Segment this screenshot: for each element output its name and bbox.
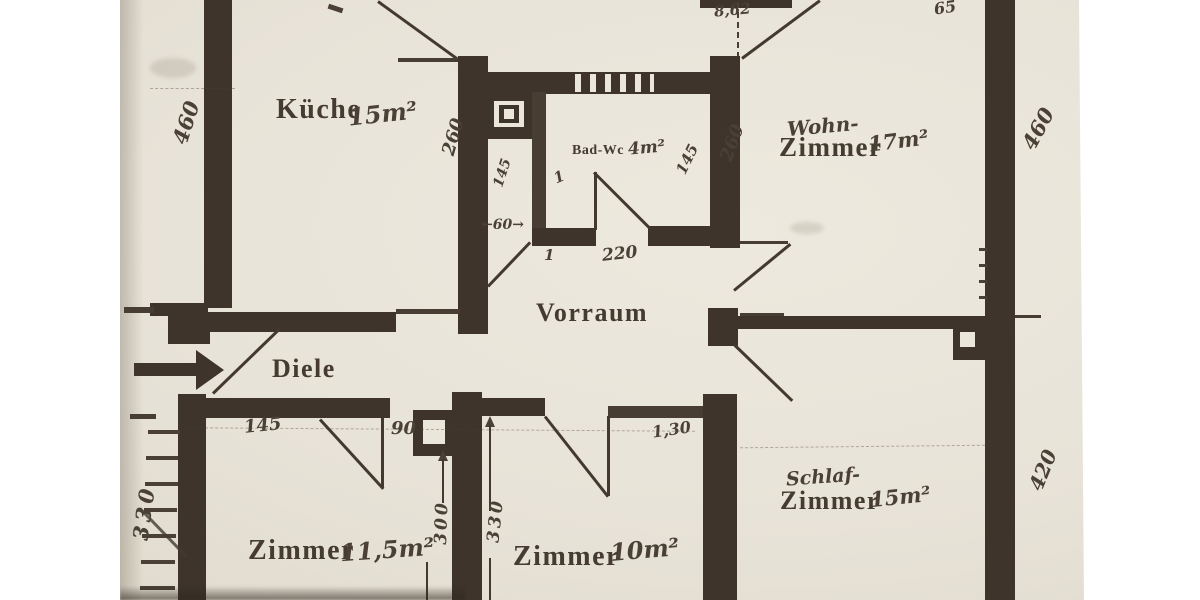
photo-edge-shadow: [120, 586, 465, 600]
wall-zimmer1-zimmer2: [452, 392, 482, 600]
wall-vorraum-bottom-right: [608, 406, 705, 418]
dim-left-height: 460: [169, 98, 203, 146]
wall-tick-outside: [1015, 315, 1041, 318]
dim-shaft-width: 145: [491, 157, 513, 189]
porch-step-line: [124, 307, 154, 313]
wall-zimmer2-schlafzimmer: [703, 394, 737, 600]
radiator-tick: [979, 296, 987, 299]
wall-kueche-right: [458, 56, 488, 334]
dim-badwc-depth: 145: [674, 142, 701, 177]
floorplan-photo: Küche 15m² Bad-Wc 4m² Wohn- Zimmer 17m² …: [0, 0, 1200, 600]
room-area-kueche: 15m²: [347, 98, 418, 129]
room-area-badwc: 4m²: [627, 138, 666, 158]
chimney-box-inner: [960, 332, 975, 347]
wall-diele-zimmer1: [178, 398, 390, 418]
room-label-vorraum: Vorraum: [536, 300, 648, 326]
dim-zimmer1-depth: 300: [433, 500, 452, 545]
wall-hatch-tick: [148, 430, 180, 434]
door-swing-wohnzimmer: [733, 243, 791, 292]
room-label-zimmer2: Zimmer: [513, 543, 620, 571]
dim-diele-door: 90: [391, 420, 416, 438]
dim-badwc-width: 220: [601, 244, 638, 265]
room-label-schlafzimmer: Zimmer: [780, 488, 880, 514]
dim-top-right-note: 65: [933, 0, 957, 18]
room-area-wohnzimmer: 17m²: [867, 126, 930, 154]
room-area-zimmer1: 11,5m²: [339, 535, 435, 566]
porch-step-line: [130, 414, 156, 419]
dim-line-300: [442, 459, 444, 503]
door-leaf-zimmer2: [607, 416, 610, 496]
dim-diele-wall: 145: [243, 415, 282, 437]
wall-shaft-right: [532, 92, 546, 234]
dim-mark-one-a: 1: [544, 248, 554, 263]
wall-vorraum-bottom-left: [482, 398, 545, 416]
dim-right-height-bottom: 420: [1026, 447, 1060, 493]
wall-hatch-tick: [141, 560, 175, 564]
dim-mark-one-b: 1: [552, 169, 567, 187]
door-threshold-kueche: [396, 309, 460, 314]
entrance-arrow-head: [196, 350, 224, 390]
wall-hatch-tick: [146, 456, 178, 460]
photo-crease: [740, 445, 990, 449]
door-threshold: [740, 313, 784, 316]
dim-zimmer2-wall-note: 1,30: [651, 419, 692, 440]
door-swing-schlafzimmer: [733, 343, 793, 401]
dim-line-330-cont: [489, 558, 491, 600]
door-swing-zimmer2: [544, 416, 609, 498]
wall-left-lower: [178, 394, 206, 600]
dim-zimmer2-depth: 330: [485, 497, 507, 543]
wall-wohn-schlaf-divider: [738, 316, 988, 329]
porch-block: [150, 303, 208, 316]
room-area-schlafzimmer: 15m²: [869, 483, 932, 510]
radiator-tick: [979, 248, 987, 251]
door-leaf-badwc: [594, 172, 597, 230]
door-threshold: [740, 241, 788, 244]
boiler-box-core: [504, 109, 514, 119]
room-label-badwc: Bad-Wc: [572, 144, 624, 158]
door-swing-kueche-top: [377, 0, 459, 60]
entrance-arrow-icon: [134, 363, 198, 376]
door-swing-badwc: [593, 171, 651, 229]
pen-mark: [328, 4, 344, 13]
dim-shaft-door: ←60→: [481, 218, 524, 232]
room-label-diele: Diele: [272, 356, 336, 382]
room-area-zimmer2: 10m²: [609, 535, 680, 565]
door-swing-closet: [487, 241, 531, 287]
radiator-tick: [979, 280, 987, 283]
wall-right: [985, 0, 1015, 600]
floorplan-screenshot: Küche 15m² Bad-Wc 4m² Wohn- Zimmer 17m² …: [0, 0, 1200, 600]
flue-box-inner: [423, 420, 445, 444]
wall-kueche-bottom: [204, 312, 396, 332]
wall-vorraum-right-mid: [708, 308, 738, 346]
wall-badwc-bottom-right: [648, 226, 712, 246]
wall-left-upper: [204, 0, 232, 308]
scan-smudge: [790, 222, 824, 234]
door-swing-wohnzimmer-top: [741, 0, 821, 60]
wall-badwc-bottom-left: [532, 228, 596, 246]
boiler-base: [482, 132, 534, 139]
window-hatch: [566, 74, 654, 92]
dim-top-door-note: 8,62: [713, 1, 751, 19]
dim-left-bottom-height: 330: [130, 483, 159, 541]
radiator-tick: [979, 264, 987, 267]
photo-crease: [150, 88, 235, 89]
dim-right-height-top: 460: [1018, 104, 1057, 153]
scan-smudge: [150, 58, 196, 78]
door-threshold: [398, 58, 458, 62]
